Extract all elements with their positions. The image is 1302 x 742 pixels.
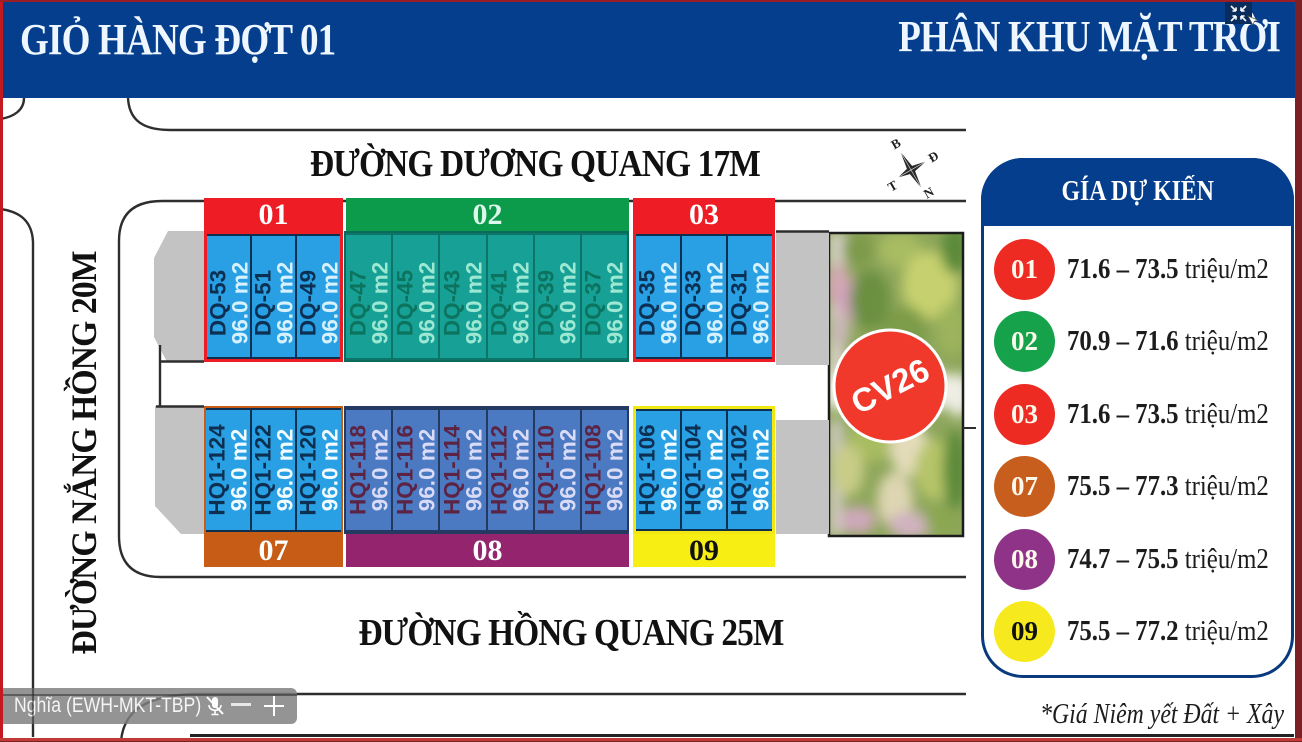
svg-text:N: N — [921, 184, 937, 202]
svg-text:B: B — [888, 135, 903, 152]
svg-text:Đ: Đ — [925, 148, 941, 166]
svg-text:T: T — [885, 177, 900, 194]
